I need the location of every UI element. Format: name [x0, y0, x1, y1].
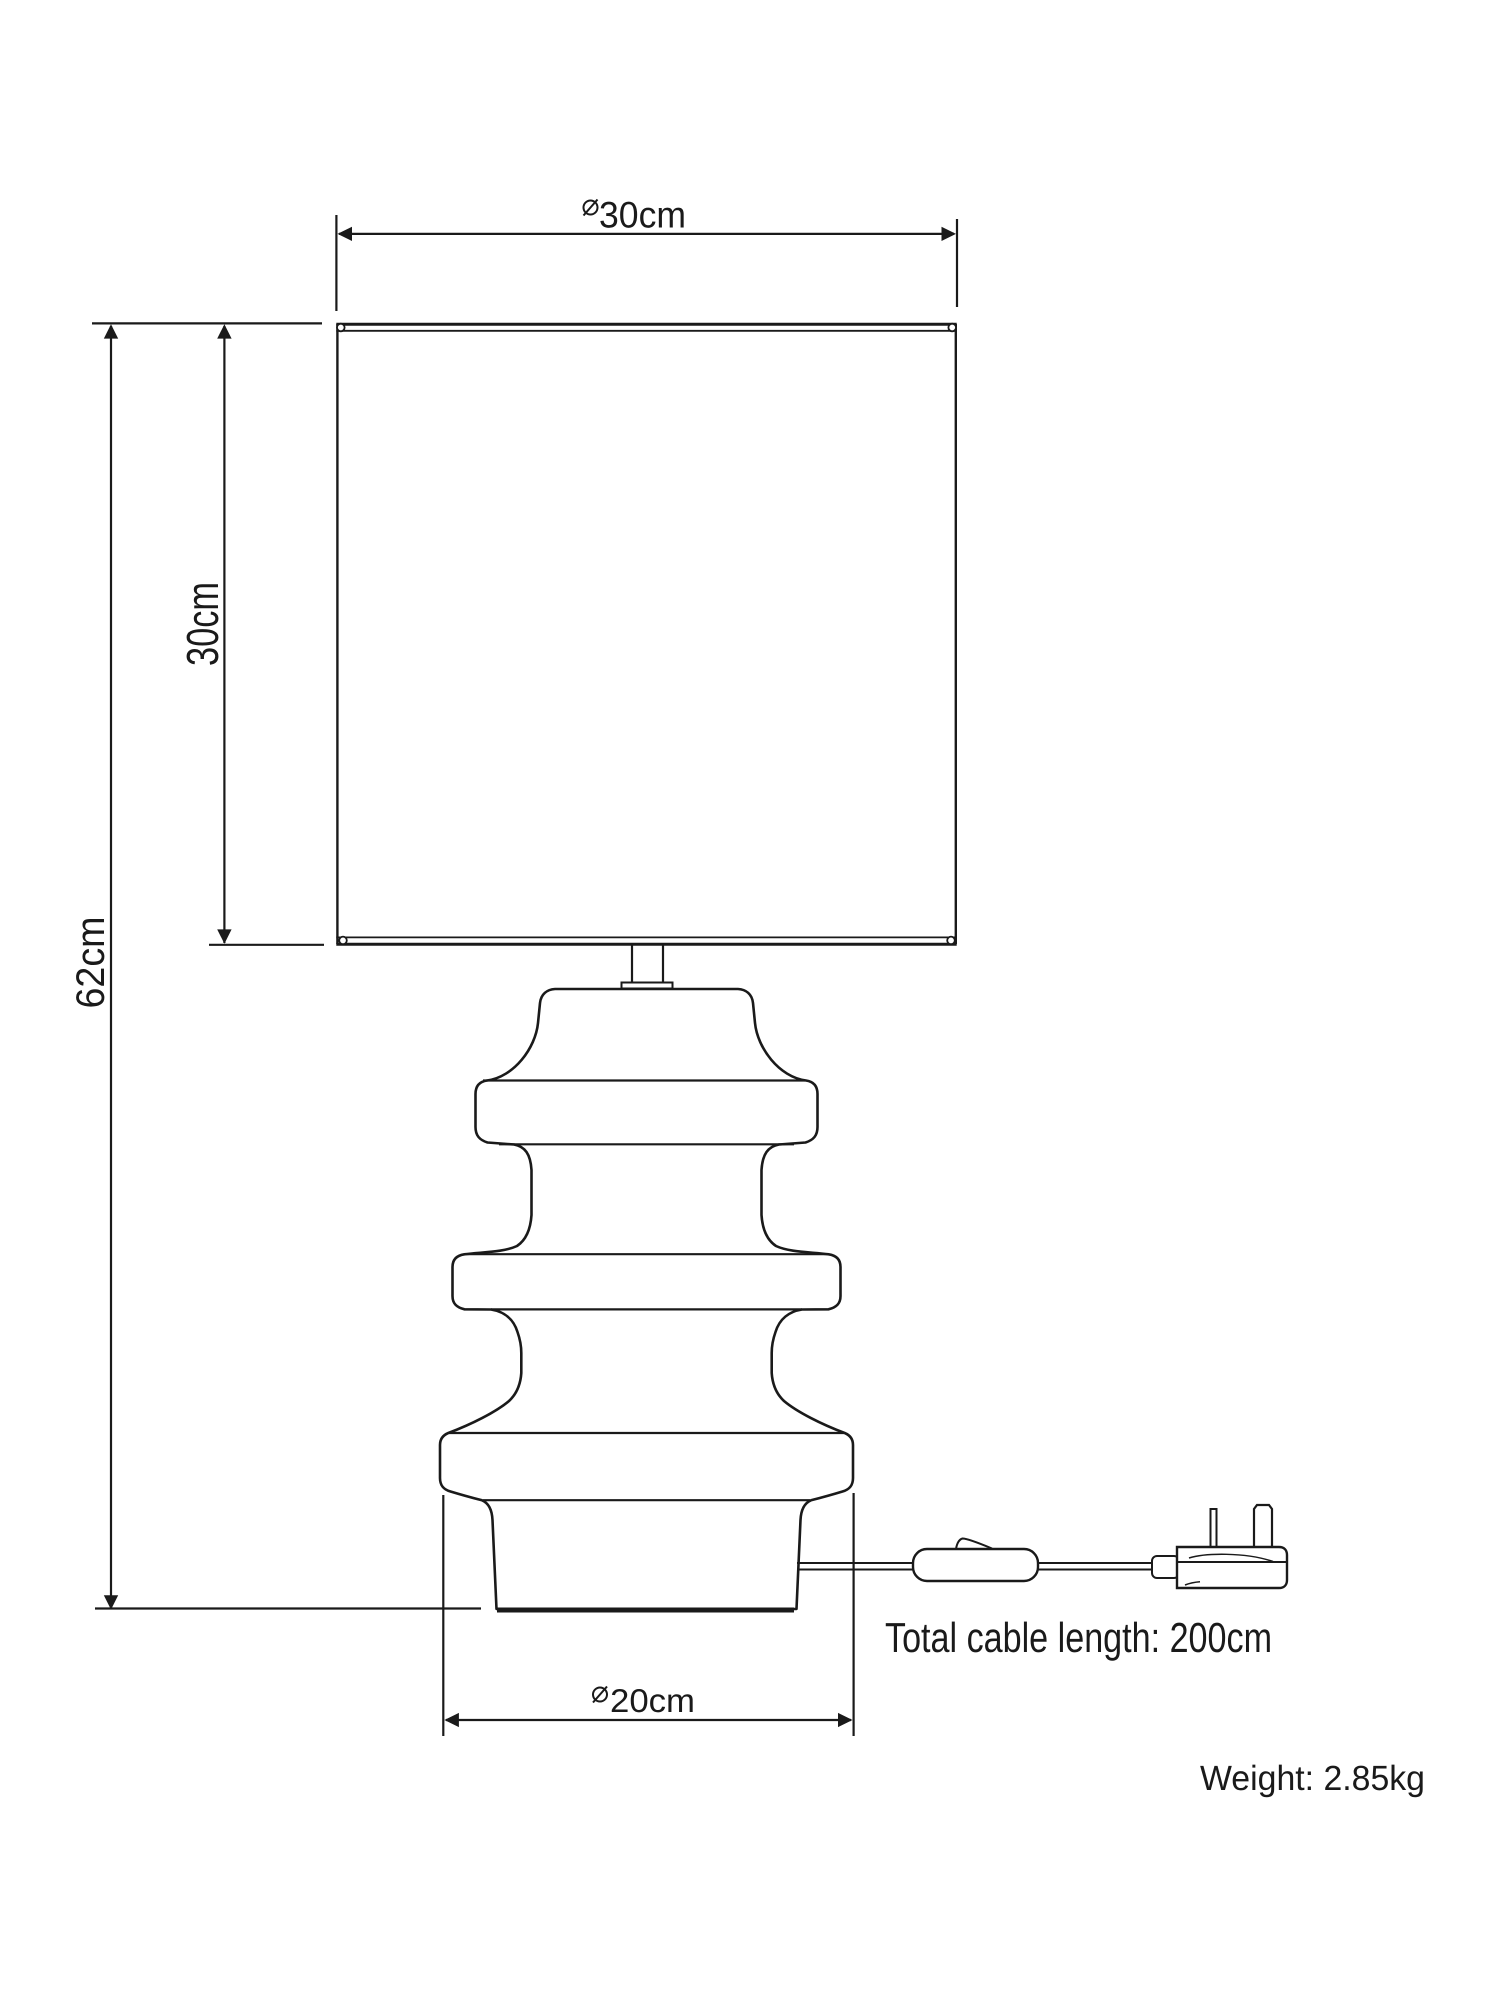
svg-text:Total cable length: 200cm: Total cable length: 200cm	[885, 1614, 1272, 1661]
svg-text:30cm: 30cm	[599, 195, 686, 236]
svg-text:62cm: 62cm	[69, 917, 113, 1009]
svg-text:Weight: 2.85kg: Weight: 2.85kg	[1200, 1759, 1425, 1798]
svg-text:20cm: 20cm	[610, 1682, 695, 1719]
svg-text:30cm: 30cm	[177, 582, 228, 666]
